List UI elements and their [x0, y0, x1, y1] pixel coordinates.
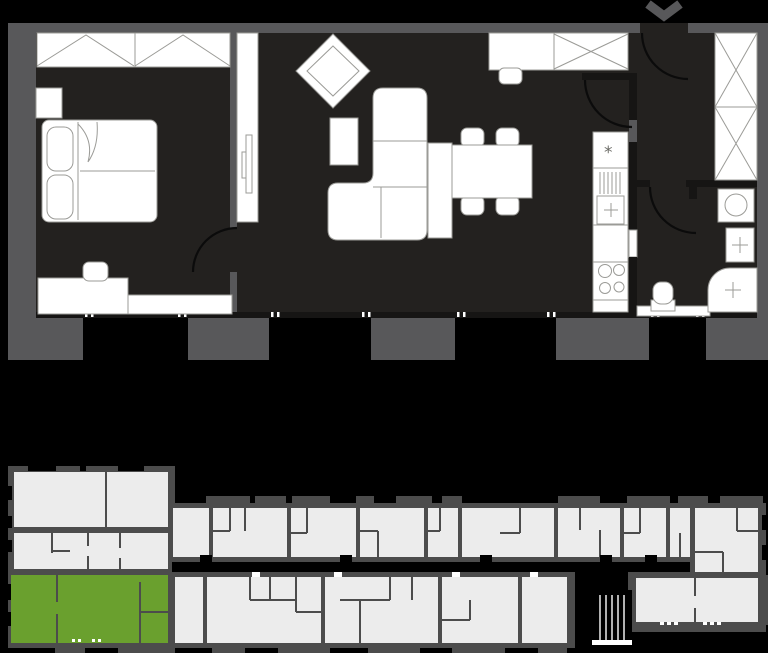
dining-chair [461, 128, 484, 147]
side-table [330, 118, 358, 165]
overview-unit[interactable] [173, 508, 758, 557]
overview-top-row [168, 496, 763, 562]
overview-unit[interactable] [175, 577, 567, 643]
freezer-symbol: * [604, 143, 613, 163]
dining-chair [461, 196, 484, 215]
wardrobe [37, 33, 230, 67]
sideboard [428, 143, 452, 238]
desk-chair [83, 262, 108, 281]
entrance-chevron-icon [648, 4, 680, 16]
floorplan-page: * [0, 0, 768, 653]
dining-chair [496, 196, 519, 215]
dining-chair [496, 128, 519, 147]
toilet [651, 282, 675, 311]
overview-unit[interactable] [14, 472, 168, 527]
washbasin [726, 228, 754, 262]
tv-wall-unit [237, 33, 258, 222]
stool [499, 68, 522, 84]
washing-machine [718, 189, 754, 222]
hall-wardrobe [715, 33, 757, 180]
entrance-hall [715, 33, 757, 180]
double-bed [42, 120, 157, 222]
niche [36, 88, 62, 118]
overview-unit[interactable] [14, 533, 168, 569]
apartment-floor-plan: * [8, 4, 768, 360]
building-overview-map [8, 466, 768, 653]
kitchen: * [593, 132, 628, 312]
overview-unit[interactable] [636, 578, 758, 622]
wall-cabinet [554, 33, 628, 70]
entry-opening-floor [640, 23, 688, 35]
overview-corridor [172, 562, 690, 572]
shower [708, 268, 757, 312]
overview-stairwell [592, 590, 632, 648]
overview-left-wing [8, 466, 175, 649]
overview-selected-unit[interactable] [11, 575, 172, 643]
dining-table [452, 145, 532, 198]
